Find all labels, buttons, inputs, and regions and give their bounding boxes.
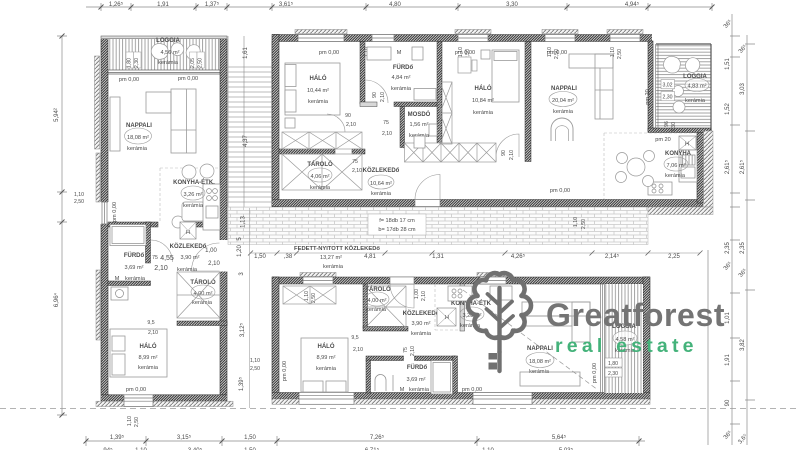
svg-text:4,26⁵: 4,26⁵ — [511, 253, 526, 260]
svg-text:20,04 m²: 20,04 m² — [552, 98, 574, 104]
svg-text:kerámia: kerámia — [138, 365, 159, 371]
svg-text:4,55: 4,55 — [160, 255, 174, 262]
svg-text:75: 75 — [403, 347, 409, 353]
svg-text:3,82: 3,82 — [740, 339, 746, 351]
svg-text:90: 90 — [725, 399, 731, 406]
svg-text:pm 0,00: pm 0,00 — [547, 50, 567, 56]
svg-text:1,20: 1,20 — [237, 245, 243, 257]
svg-text:5,94²: 5,94² — [54, 108, 60, 122]
svg-text:2,50: 2,50 — [581, 219, 587, 229]
svg-text:75: 75 — [383, 120, 389, 126]
svg-text:FEDETT-NYITOTT KÖZLEKEDő: FEDETT-NYITOTT KÖZLEKEDő — [294, 245, 380, 252]
svg-text:1,01: 1,01 — [725, 312, 731, 324]
svg-text:75: 75 — [352, 159, 358, 165]
svg-text:3,30: 3,30 — [506, 2, 518, 8]
svg-text:2,50: 2,50 — [617, 49, 623, 59]
svg-text:1,56 m²: 1,56 m² — [410, 122, 429, 128]
svg-text:9,5: 9,5 — [147, 320, 154, 326]
svg-text:KÖZLEKEDő: KÖZLEKEDő — [170, 243, 207, 250]
svg-text:kerámia: kerámia — [411, 331, 432, 337]
svg-text:2,10: 2,10 — [352, 168, 362, 174]
svg-text:7,26⁵: 7,26⁵ — [370, 434, 385, 441]
svg-text:kerámia: kerámia — [127, 146, 148, 152]
svg-text:kerámia: kerámia — [553, 109, 574, 115]
svg-text:9,5: 9,5 — [351, 335, 358, 341]
svg-text:3,69 m²: 3,69 m² — [125, 265, 144, 271]
svg-text:2,50: 2,50 — [198, 58, 204, 68]
svg-text:2,30: 2,30 — [608, 371, 618, 377]
svg-text:4,37: 4,37 — [243, 135, 249, 147]
svg-text:4,06 m²: 4,06 m² — [311, 174, 330, 180]
svg-text:pm 0,00: pm 0,00 — [462, 387, 482, 393]
svg-text:2,50: 2,50 — [74, 199, 84, 205]
svg-text:1,80: 1,80 — [608, 361, 618, 367]
svg-text:2,30: 2,30 — [134, 58, 140, 68]
svg-text:TÁROLÓ: TÁROLÓ — [307, 160, 333, 168]
svg-text:kerámia: kerámia — [310, 185, 331, 191]
svg-text:kerámia: kerámia — [316, 366, 337, 372]
svg-text:1,10: 1,10 — [573, 217, 579, 227]
svg-text:pm 0,00: pm 0,00 — [112, 202, 118, 222]
svg-text:pm 0,00: pm 0,00 — [126, 387, 146, 393]
svg-text:1,10: 1,10 — [127, 416, 133, 426]
svg-text:HÁLÓ: HÁLÓ — [140, 342, 157, 350]
svg-text:3,12⁵: 3,12⁵ — [239, 322, 246, 337]
svg-text:1,13: 1,13 — [241, 216, 247, 228]
svg-text:H: H — [445, 315, 449, 321]
svg-text:HÁLÓ: HÁLÓ — [310, 74, 327, 82]
svg-text:2,61⁵: 2,61⁵ — [724, 159, 731, 174]
svg-text:KÖZLEKEDő: KÖZLEKEDő — [403, 310, 440, 317]
svg-text:2,10: 2,10 — [509, 150, 515, 160]
svg-text:1,91: 1,91 — [157, 2, 169, 8]
svg-text:4,83 m²: 4,83 m² — [688, 84, 707, 90]
svg-text:1,10: 1,10 — [74, 192, 84, 198]
svg-text:3,90 m²: 3,90 m² — [412, 321, 431, 327]
svg-text:3,69 m²: 3,69 m² — [407, 377, 426, 383]
svg-text:1,31: 1,31 — [432, 254, 444, 260]
svg-text:3,03: 3,03 — [740, 83, 746, 95]
svg-text:kerámia: kerámia — [323, 264, 344, 270]
svg-text:4,00 m²: 4,00 m² — [368, 298, 387, 304]
svg-text:5,64⁵: 5,64⁵ — [552, 434, 567, 441]
svg-text:1,52: 1,52 — [725, 103, 731, 115]
svg-text:75: 75 — [152, 255, 158, 261]
svg-text:pm 0,00: pm 0,00 — [282, 361, 288, 381]
svg-text:1,61: 1,61 — [243, 47, 249, 59]
svg-text:3,90 m²: 3,90 m² — [181, 255, 200, 261]
svg-text:kerámia: kerámia — [665, 173, 686, 179]
svg-text:1,39⁵: 1,39⁵ — [238, 376, 245, 391]
svg-text:3,61⁵: 3,61⁵ — [279, 1, 294, 8]
svg-text:4,00 m²: 4,00 m² — [194, 291, 213, 297]
svg-text:,38: ,38 — [284, 254, 293, 260]
svg-text:2,10: 2,10 — [154, 265, 168, 272]
svg-text:2,14⁵: 2,14⁵ — [605, 253, 620, 260]
svg-text:pm 0,00: pm 0,00 — [319, 50, 339, 56]
svg-text:real estate: real estate — [555, 335, 698, 357]
svg-text:1,51: 1,51 — [725, 58, 731, 70]
svg-text:kerámia: kerámia — [685, 98, 706, 104]
svg-text:1,50: 1,50 — [254, 254, 266, 260]
svg-text:H: H — [186, 230, 190, 236]
svg-text:kerámia: kerámia — [192, 300, 213, 306]
svg-text:pm 20: pm 20 — [645, 89, 651, 105]
svg-text:1,80: 1,80 — [127, 58, 133, 68]
svg-text:b= 17db 28 cm: b= 17db 28 cm — [378, 227, 416, 233]
svg-text:1,91: 1,91 — [725, 354, 731, 366]
svg-text:pm 0,00: pm 0,00 — [455, 50, 475, 56]
svg-text:1,00: 1,00 — [414, 289, 420, 299]
svg-text:pm 0,00: pm 0,00 — [550, 188, 570, 194]
svg-text:1,37⁵: 1,37⁵ — [205, 1, 220, 8]
svg-text:10,84 m²: 10,84 m² — [472, 98, 494, 104]
svg-text:10,44 m²: 10,44 m² — [307, 88, 329, 94]
svg-text:90: 90 — [501, 150, 507, 156]
svg-text:f= 18db 17 cm: f= 18db 17 cm — [379, 218, 415, 224]
svg-text:2,10: 2,10 — [380, 92, 386, 102]
svg-text:NAPPALI: NAPPALI — [527, 346, 553, 352]
svg-text:4,80: 4,80 — [389, 2, 401, 8]
svg-text:pm 0,00: pm 0,00 — [178, 76, 198, 82]
svg-text:M: M — [400, 387, 405, 393]
svg-text:HÁLÓ: HÁLÓ — [475, 84, 492, 92]
svg-text:pm 0,00: pm 0,00 — [119, 77, 139, 83]
svg-text:M: M — [115, 276, 120, 282]
svg-text:H: H — [685, 142, 689, 148]
svg-text:KÖZLEKEDő: KÖZLEKEDő — [363, 167, 400, 174]
svg-text:1,10: 1,10 — [304, 291, 310, 301]
svg-text:2,10: 2,10 — [208, 261, 220, 267]
svg-text:8,99 m²: 8,99 m² — [139, 355, 158, 361]
svg-text:13,27 m²: 13,27 m² — [320, 255, 342, 261]
svg-text:2,10: 2,10 — [382, 131, 392, 137]
svg-text:1,00: 1,00 — [205, 248, 217, 254]
svg-text:4,81: 4,81 — [364, 254, 376, 260]
svg-text:2,25: 2,25 — [668, 254, 680, 260]
svg-text:3,26 m²: 3,26 m² — [184, 192, 203, 198]
svg-text:2,10: 2,10 — [410, 346, 416, 356]
svg-text:6,96⁴: 6,96⁴ — [53, 292, 60, 307]
svg-text:2,50: 2,50 — [134, 417, 140, 427]
svg-text:2,30: 2,30 — [662, 95, 672, 101]
svg-text:M: M — [397, 50, 402, 56]
svg-text:1,26⁵: 1,26⁵ — [109, 1, 124, 8]
svg-text:LOGGIA: LOGGIA — [156, 38, 180, 44]
svg-text:2,35: 2,35 — [740, 242, 746, 254]
svg-text:90: 90 — [345, 113, 351, 119]
svg-text:KONYHA-ÉTK.: KONYHA-ÉTK. — [173, 178, 215, 186]
svg-text:kerámia: kerámia — [391, 86, 412, 92]
svg-text:2,50: 2,50 — [250, 366, 260, 372]
svg-text:FÜRDő: FÜRDő — [124, 252, 145, 259]
svg-text:1,50: 1,50 — [244, 435, 256, 441]
svg-text:1,10: 1,10 — [250, 358, 260, 364]
svg-text:pm 0,00: pm 0,00 — [592, 363, 598, 383]
svg-text:2,10: 2,10 — [148, 330, 158, 336]
svg-text:KONYHA: KONYHA — [665, 151, 692, 157]
svg-text:96: 96 — [664, 121, 670, 127]
svg-text:kerámia: kerámia — [371, 191, 392, 197]
svg-text:2,10: 2,10 — [346, 122, 356, 128]
svg-text:18,08 m²: 18,08 m² — [127, 135, 149, 141]
svg-text:FÜRDő: FÜRDő — [393, 64, 414, 71]
svg-text:kerámia: kerámia — [158, 60, 179, 66]
svg-text:NAPPALI: NAPPALI — [551, 86, 577, 92]
svg-text:MOSDÓ: MOSDÓ — [408, 110, 431, 118]
svg-text:HÁLÓ: HÁLÓ — [318, 342, 335, 350]
svg-text:4,56 m²: 4,56 m² — [161, 50, 180, 56]
svg-text:2,05: 2,05 — [190, 58, 196, 68]
svg-text:2,35: 2,35 — [725, 242, 731, 254]
svg-text:1,39⁵: 1,39⁵ — [110, 434, 125, 441]
svg-text:3,02: 3,02 — [662, 83, 672, 89]
svg-text:pm 20: pm 20 — [655, 137, 671, 143]
svg-text:kerámia: kerámia — [125, 276, 146, 282]
svg-text:10,64 m²: 10,64 m² — [370, 181, 392, 187]
svg-text:4,84 m²: 4,84 m² — [392, 75, 411, 81]
svg-text:8,99 m²: 8,99 m² — [317, 355, 336, 361]
svg-text:kerámia: kerámia — [409, 387, 430, 393]
svg-text:FÜRDő: FÜRDő — [407, 364, 428, 371]
svg-text:kerámia: kerámia — [366, 307, 387, 313]
svg-text:kerámia: kerámia — [473, 110, 494, 116]
svg-text:kerámia: kerámia — [183, 203, 204, 209]
svg-text:2,61⁵: 2,61⁵ — [739, 159, 746, 174]
svg-text:18,08 m²: 18,08 m² — [529, 359, 551, 365]
svg-text:3,15⁵: 3,15⁵ — [177, 434, 192, 441]
svg-text:7,06 m²: 7,06 m² — [667, 163, 686, 169]
svg-text:4,94⁵: 4,94⁵ — [625, 1, 640, 8]
svg-text:kerámia: kerámia — [308, 99, 329, 105]
svg-text:2,10: 2,10 — [421, 291, 427, 301]
svg-text:Greatforest: Greatforest — [546, 297, 725, 333]
svg-text:2,30: 2,30 — [671, 122, 677, 132]
svg-text:90: 90 — [372, 92, 378, 98]
svg-text:2,10: 2,10 — [353, 347, 363, 353]
